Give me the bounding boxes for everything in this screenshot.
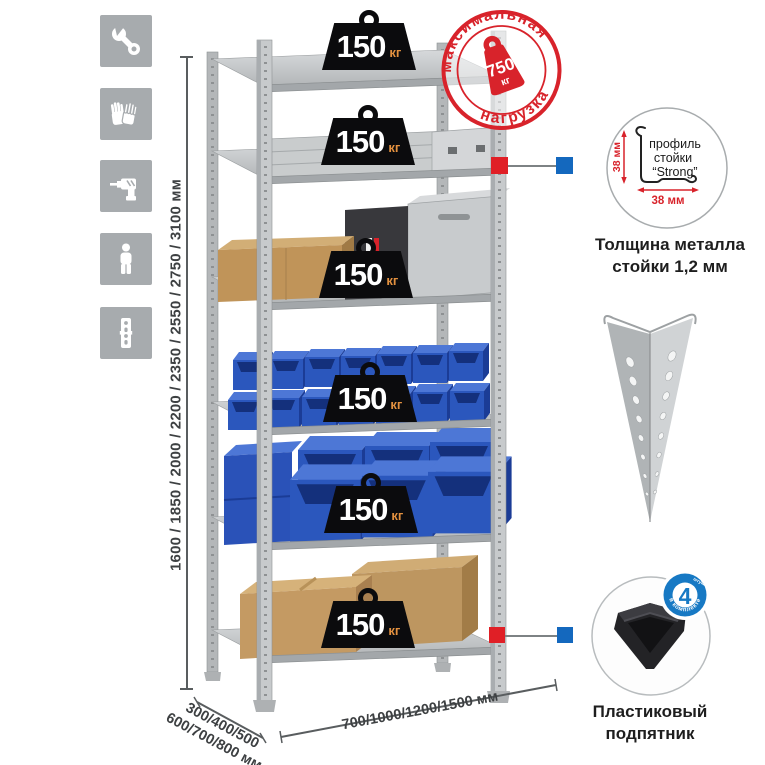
gloves-icon xyxy=(100,88,152,140)
kit-count-badge: 4 штуки в комплекте xyxy=(659,569,711,621)
height-dimension-line xyxy=(186,57,188,690)
connector-red-square-top xyxy=(491,157,508,174)
wrench-icon xyxy=(100,15,152,67)
post-profile-detail: 38 мм 38 мм профиль стойки “Strong” xyxy=(605,106,729,230)
profile-label-1: профиль xyxy=(649,137,701,151)
shelf-load-badge: 150кг xyxy=(324,473,418,533)
height-dimension-label: 1600 / 1850 / 2000 / 2200 / 2350 / 2550 … xyxy=(168,179,185,571)
connector-line-top xyxy=(508,165,558,167)
profile-horizontal-dim: 38 мм xyxy=(651,195,684,207)
shelf-load-badge: 150кг xyxy=(321,105,415,165)
shelving-infographic: 1600 / 1850 / 2000 / 2200 / 2350 / 2550 … xyxy=(0,0,765,765)
profile-label-3: “Strong” xyxy=(652,165,697,179)
foot-caption: Пластиковый подпятник xyxy=(574,701,726,745)
shelf-load-badge: 150кг xyxy=(321,588,415,648)
shelf-load-badge: 150кг xyxy=(319,238,413,298)
connector-blue-square-bottom xyxy=(557,627,573,643)
connector-red-square-bottom xyxy=(489,627,505,643)
connector-blue-square-top xyxy=(556,157,573,174)
profile-caption: Толщина металла стойки 1,2 мм xyxy=(594,234,746,278)
drill-icon xyxy=(100,160,152,212)
post-profile-icon xyxy=(100,307,152,359)
profile-label-2: стойки xyxy=(654,151,692,165)
max-load-stamp: максимальная нагрузка 750 кг xyxy=(437,5,567,135)
shelf-load-badge: 150кг xyxy=(322,10,416,70)
person-icon xyxy=(100,233,152,285)
height-dim-tick-top xyxy=(180,56,193,58)
connector-line-bottom xyxy=(505,635,557,637)
shelf-load-badge: 150кг xyxy=(323,362,417,422)
badge-count: 4 xyxy=(679,583,692,609)
corner-post-image xyxy=(597,300,703,530)
profile-vertical-dim: 38 мм xyxy=(611,142,623,172)
